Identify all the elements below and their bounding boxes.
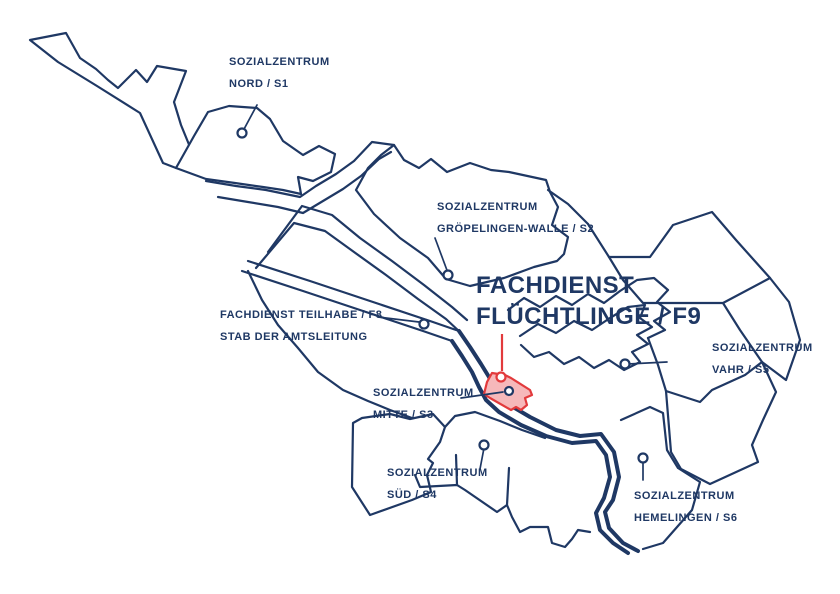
label-sozialzentrum-vahr-s5: SOZIALZENTRUM VAHR / S5: [712, 337, 813, 381]
label-line: NORD / S1: [229, 73, 330, 95]
label-line: SOZIALZENTRUM: [387, 462, 488, 484]
label-sozialzentrum-groepelingen-walle-s2: SOZIALZENTRUM GRÖPELINGEN-WALLE / S2: [437, 196, 594, 240]
s1-location-marker: [238, 129, 247, 138]
label-line: SOZIALZENTRUM: [712, 337, 813, 359]
label-line: FACHDIENST: [476, 270, 701, 301]
label-line: SOZIALZENTRUM: [437, 196, 594, 218]
label-line: SOZIALZENTRUM: [229, 51, 330, 73]
s2-location-marker: [444, 271, 453, 280]
label-line: HEMELINGEN / S6: [634, 507, 737, 529]
f9-location-marker: [497, 373, 506, 382]
label-sozialzentrum-mitte-s3: SOZIALZENTRUM MITTE / S3: [373, 382, 474, 426]
label-line: STAB DER AMTSLEITUNG: [220, 326, 382, 348]
highlight-region-f9: [484, 334, 532, 410]
s5-location-marker: [621, 360, 630, 369]
s4-location-marker: [480, 441, 489, 450]
label-line: FACHDIENST TEILHABE / F8: [220, 304, 382, 326]
label-line: VAHR / S5: [712, 359, 813, 381]
district-outline-northwest-arm: [30, 33, 190, 168]
boundary-south-stub-b: [507, 468, 509, 505]
label-sozialzentrum-nord-s1: SOZIALZENTRUM NORD / S1: [229, 51, 330, 95]
boundary-vahr-osterholz-link: [648, 338, 666, 391]
river-bank-south: [452, 341, 628, 553]
label-fachdienst-teilhabe-f8: FACHDIENST TEILHABE / F8 STAB DER AMTSLE…: [220, 304, 382, 348]
s6-location-marker: [639, 454, 648, 463]
s3-location-marker: [505, 387, 513, 395]
label-line: SOZIALZENTRUM: [373, 382, 474, 404]
label-fachdienst-fluechtlinge-f9: FACHDIENST FLÜCHTLINGE / F9: [476, 270, 701, 332]
label-sozialzentrum-hemelingen-s6: SOZIALZENTRUM HEMELINGEN / S6: [634, 485, 737, 529]
f8-leader-line: [378, 317, 419, 322]
label-sozialzentrum-sued-s4: SOZIALZENTRUM SÜD / S4: [387, 462, 488, 506]
label-line: GRÖPELINGEN-WALLE / S2: [437, 218, 594, 240]
bremen-district-map: SOZIALZENTRUM NORD / S1 SOZIALZENTRUM GR…: [0, 0, 840, 594]
f8-location-marker: [420, 320, 429, 329]
district-outline-nord: [176, 106, 335, 194]
label-line: FLÜCHTLINGE / F9: [476, 301, 701, 332]
label-line: MITTE / S3: [373, 404, 474, 426]
s5-leader-line: [628, 362, 667, 364]
label-line: SÜD / S4: [387, 484, 488, 506]
label-line: SOZIALZENTRUM: [634, 485, 737, 507]
